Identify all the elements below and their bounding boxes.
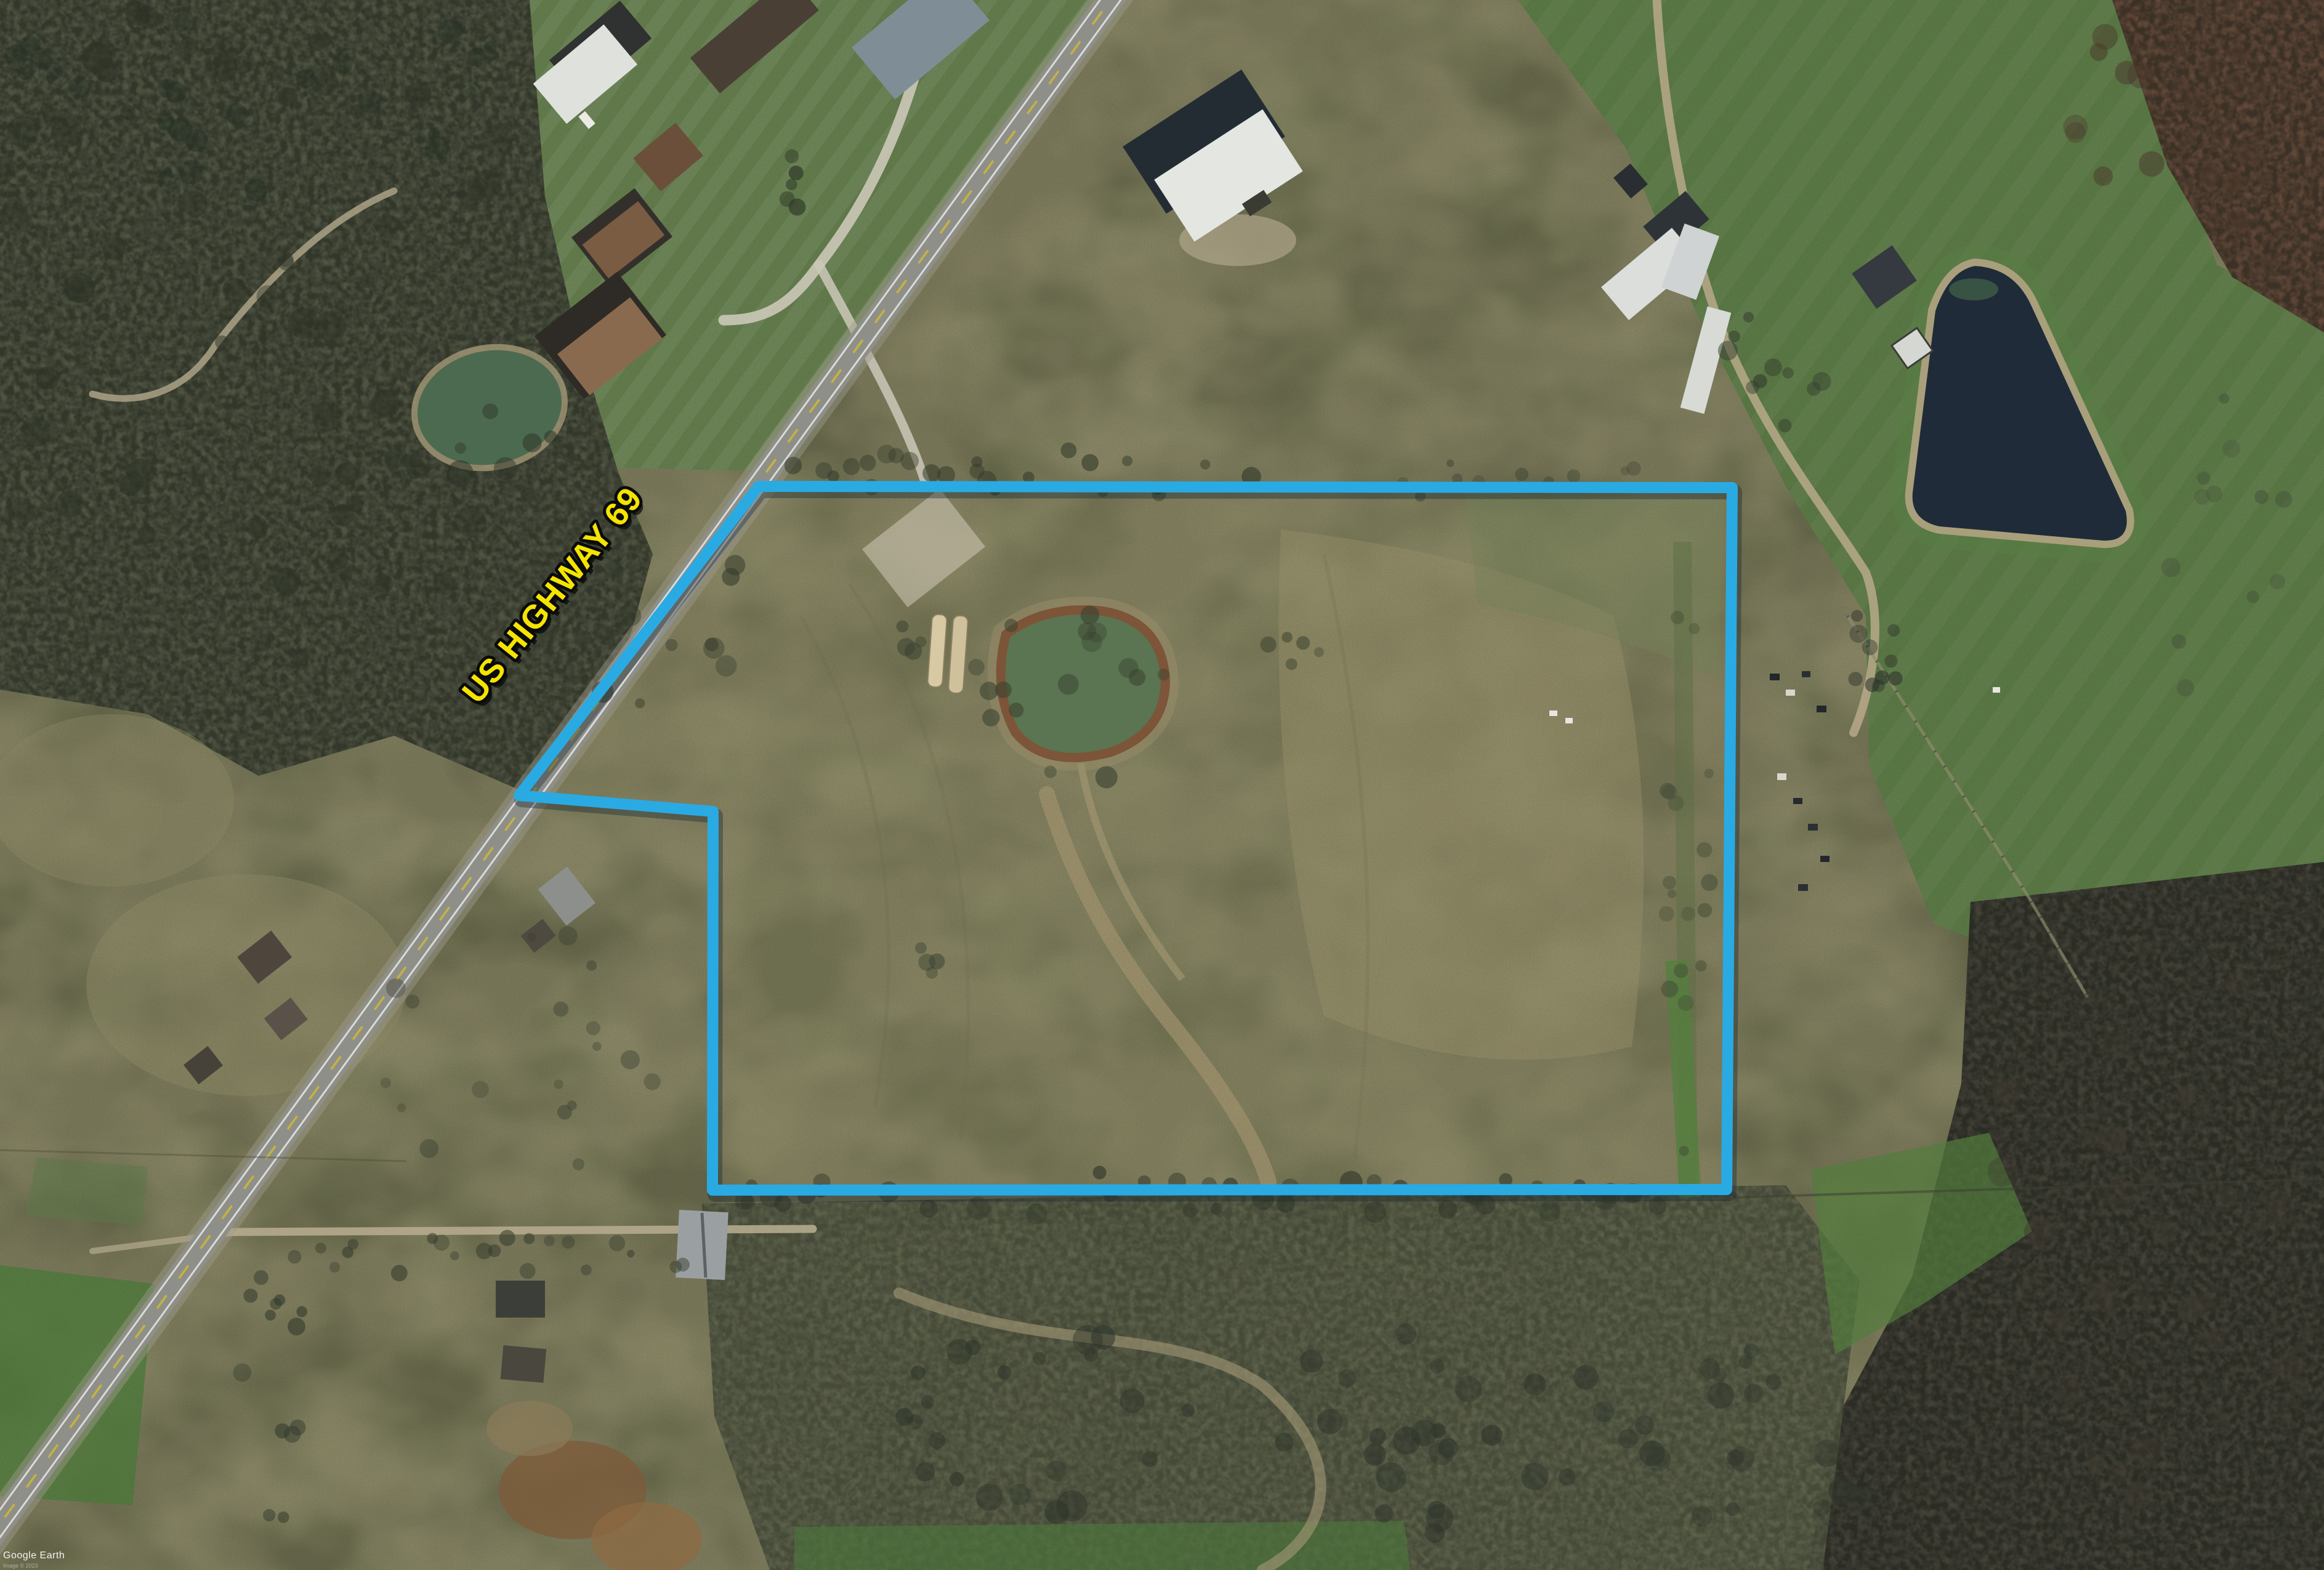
shed-south-dark: [496, 1281, 545, 1318]
tree-blob: [2171, 77, 2189, 95]
tree-blob: [42, 107, 62, 127]
tree-blob: [1158, 669, 1169, 680]
tree-blob: [877, 445, 895, 463]
tree-blob: [1081, 606, 1099, 624]
tree-blob: [358, 90, 382, 113]
tree-blob: [815, 462, 832, 479]
tree-blob: [290, 1420, 306, 1436]
tree-blob: [982, 709, 999, 726]
tree-blob: [1701, 874, 1717, 891]
tree-blob: [1317, 1409, 1342, 1434]
tree-blob: [2265, 1196, 2296, 1226]
tree-blob: [1849, 672, 1863, 686]
tree-blob: [263, 1509, 275, 1521]
tree-blob: [1429, 1439, 1455, 1465]
tree-blob: [1275, 1433, 1294, 1452]
tree-blob: [908, 1414, 922, 1428]
tree-blob: [1764, 358, 1782, 376]
tree-blob: [1705, 768, 1714, 778]
tree-blob: [843, 458, 860, 475]
tree-blob: [703, 637, 725, 659]
tree-blob: [897, 621, 909, 633]
tree-blob: [929, 954, 945, 970]
tree-blob: [458, 179, 485, 207]
tree-blob: [255, 635, 271, 651]
tree-blob: [55, 491, 83, 518]
tree-blob: [94, 58, 118, 83]
tree-blob: [269, 65, 285, 81]
tree-blob: [2088, 1456, 2106, 1475]
tree-blob: [375, 574, 393, 593]
tree-blob: [434, 1234, 450, 1250]
tree-blob: [450, 1251, 459, 1260]
tree-blob: [36, 366, 60, 390]
tree-blob: [523, 433, 542, 453]
tree-blob: [2193, 1294, 2212, 1313]
tree-blob: [2063, 115, 2088, 139]
tree-blob: [1729, 331, 1740, 342]
tree-blob: [1718, 341, 1738, 361]
tree-blob: [1689, 623, 1700, 634]
tree-blob: [1026, 1204, 1047, 1225]
tree-blob: [562, 1236, 575, 1249]
tree-blob: [1122, 456, 1132, 466]
tree-blob: [2222, 440, 2240, 458]
tree-blob: [408, 108, 419, 119]
tree-blob: [212, 39, 236, 63]
tree-blob: [2094, 166, 2113, 186]
tree-blob: [915, 942, 927, 954]
tree-blob: [1430, 1359, 1445, 1374]
tree-blob: [1988, 1157, 2018, 1187]
tree-blob: [2235, 140, 2261, 166]
tree-blob: [581, 1265, 592, 1276]
tree-blob: [20, 416, 51, 447]
tree-blob: [950, 1472, 964, 1487]
tree-blob: [1671, 611, 1684, 624]
tree-blob: [158, 113, 175, 131]
tree-blob: [1200, 459, 1210, 469]
tree-blob: [215, 336, 229, 350]
tree-blob: [1726, 1502, 1740, 1516]
tree-blob: [482, 403, 498, 419]
tree-blob: [911, 1366, 926, 1380]
tree-blob: [1364, 1444, 1386, 1466]
tree-blob: [499, 1230, 515, 1246]
tree-blob: [2198, 162, 2222, 186]
tree-blob: [567, 1100, 577, 1110]
tree-blob: [1393, 1427, 1421, 1454]
tree-blob: [786, 179, 797, 190]
tree-blob: [1679, 1146, 1689, 1156]
tree-blob: [179, 159, 204, 184]
tree-blob: [1559, 1468, 1576, 1486]
tree-blob: [1813, 1499, 1830, 1516]
tree-blob: [329, 1262, 340, 1273]
tree-blob: [2112, 1135, 2126, 1149]
tree-blob: [243, 1289, 257, 1303]
tree-blob: [1753, 374, 1767, 388]
tree-blob: [372, 389, 400, 417]
tree-blob: [1375, 1504, 1394, 1523]
tree-blob: [2277, 1410, 2293, 1425]
tree-blob: [1425, 1523, 1445, 1543]
tree-blob: [288, 308, 319, 339]
tree-blob: [409, 454, 422, 467]
tree-blob: [1744, 1343, 1759, 1359]
tree-blob: [2124, 1481, 2153, 1510]
tree-blob: [2143, 1172, 2157, 1186]
tree-blob: [2139, 151, 2164, 177]
tree-blob: [485, 123, 514, 152]
tree-blob: [1120, 1388, 1145, 1413]
tree-blob: [466, 87, 476, 97]
tree-blob: [2104, 1303, 2118, 1318]
google-earth-watermark: Google Earth: [3, 1550, 65, 1561]
tree-blob: [998, 1366, 1012, 1380]
tree-blob: [1621, 466, 1630, 475]
tree-blob: [1033, 1352, 1046, 1366]
tree-blob: [2211, 1411, 2231, 1430]
tree-blob: [789, 166, 804, 180]
tree-blob: [275, 1423, 290, 1439]
tree-blob: [309, 33, 326, 51]
tree-blob: [12, 502, 35, 525]
tree-blob: [2177, 679, 2194, 696]
tree-blob: [454, 505, 486, 537]
tree-blob: [1523, 1373, 1546, 1395]
tree-blob: [46, 62, 63, 79]
tree-blob: [68, 76, 91, 99]
tree-blob: [438, 20, 462, 44]
tree-blob: [2024, 1217, 2053, 1246]
tree-blob: [1697, 842, 1712, 858]
tree-blob: [64, 273, 94, 303]
tree-blob: [1635, 1415, 1654, 1435]
tree-blob: [1081, 454, 1099, 472]
tree-blob: [2217, 1186, 2237, 1205]
dirt-pile-3: [486, 1401, 573, 1456]
tree-blob: [1659, 906, 1674, 922]
tree-blob: [1395, 1324, 1416, 1345]
tree-blob: [523, 1233, 535, 1244]
tree-blob: [1446, 459, 1454, 467]
tree-blob: [223, 278, 248, 302]
tree-blob: [2226, 44, 2243, 61]
tree-blob: [716, 655, 737, 677]
tree-blob: [1046, 1460, 1067, 1481]
tree-blob: [621, 1050, 640, 1069]
tree-blob: [472, 1081, 489, 1098]
tree-blob: [455, 443, 466, 454]
tree-blob: [348, 1239, 358, 1249]
tree-blob: [1004, 619, 1018, 632]
tree-blob: [2205, 1330, 2225, 1350]
tree-blob: [897, 638, 915, 656]
tree-blob: [2127, 1278, 2143, 1294]
tree-blob: [310, 466, 331, 487]
tree-blob: [2136, 941, 2152, 957]
tree-blob: [2219, 393, 2229, 404]
tree-blob: [1695, 960, 1706, 972]
tree-blob: [860, 455, 876, 471]
tree-blob: [1698, 903, 1713, 918]
tree-blob: [1574, 1365, 1599, 1390]
tree-blob: [406, 995, 420, 1009]
tree-blob: [570, 675, 580, 685]
tree-blob: [2115, 61, 2139, 85]
tree-blob: [1182, 1404, 1195, 1417]
tree-blob: [574, 630, 592, 648]
tree-blob: [2300, 1325, 2315, 1340]
tree-blob: [609, 1235, 625, 1251]
tree-blob: [1482, 1425, 1503, 1446]
tree-blob: [1567, 469, 1581, 483]
tree-blob: [1743, 312, 1754, 323]
tree-blob: [288, 1318, 305, 1335]
tree-blob: [1851, 610, 1863, 622]
tree-blob: [158, 79, 177, 98]
tree-blob: [467, 47, 486, 66]
tree-blob: [103, 237, 126, 260]
tree-blob: [494, 457, 517, 481]
tree-blob: [381, 1077, 391, 1088]
tree-blob: [1663, 876, 1676, 889]
tree-blob: [1778, 419, 1792, 432]
tree-blob: [2257, 171, 2271, 185]
tree-blob: [1044, 1500, 1068, 1524]
tree-blob: [2172, 634, 2187, 649]
tree-blob: [315, 311, 346, 342]
tree-blob: [2226, 211, 2253, 238]
tree-blob: [2054, 1379, 2082, 1407]
tree-blob: [245, 179, 267, 201]
tree-blob: [1849, 1486, 1873, 1510]
tree-blob: [2108, 1460, 2134, 1486]
tree-blob: [1594, 1401, 1615, 1422]
tree-blob: [559, 927, 578, 946]
tree-blob: [173, 13, 191, 31]
tree-blob: [315, 1242, 326, 1254]
tree-blob: [1282, 632, 1293, 642]
tree-blob: [563, 451, 576, 464]
tree-blob: [335, 462, 358, 486]
tree-blob: [1044, 766, 1057, 778]
tree-blob: [554, 1080, 563, 1089]
tree-blob: [233, 1364, 251, 1382]
tree-blob: [2225, 970, 2252, 997]
tree-blob: [1300, 1350, 1323, 1372]
tree-blob: [265, 1310, 276, 1321]
tree-blob: [447, 461, 474, 487]
tree-blob: [296, 69, 315, 88]
imagery-attribution: Image © 2023: [3, 1563, 38, 1569]
tree-blob: [976, 1484, 1003, 1511]
tree-blob: [476, 1243, 493, 1260]
tree-blob: [520, 1263, 536, 1279]
tree-blob: [2222, 172, 2244, 193]
tree-blob: [1661, 981, 1679, 998]
tree-blob: [278, 1512, 289, 1523]
tree-blob: [185, 129, 208, 152]
tree-blob: [406, 81, 432, 107]
tree-blob: [669, 1261, 682, 1273]
tree-blob: [2202, 58, 2220, 76]
tree-blob: [785, 457, 802, 474]
tree-blob: [1087, 622, 1107, 642]
tree-blob: [1700, 1358, 1721, 1379]
tree-blob: [1708, 1382, 1734, 1409]
tree-blob: [722, 568, 740, 586]
tree-blob: [1118, 658, 1138, 678]
tree-blob: [278, 255, 294, 271]
tree-blob: [1261, 637, 1277, 653]
tree-blob: [1889, 671, 1903, 685]
tree-blob: [226, 103, 248, 125]
tree-blob: [613, 568, 624, 579]
tree-blob: [785, 149, 799, 163]
tree-blob: [368, 161, 377, 171]
tree-blob: [1314, 647, 1324, 657]
tree-blob: [1814, 1439, 1841, 1467]
tree-blob: [1058, 674, 1079, 695]
tree-blob: [375, 214, 399, 238]
tree-blob: [1681, 907, 1695, 921]
tree-blob: [1009, 702, 1023, 717]
tree-blob: [312, 401, 342, 432]
pond-east-algae: [1949, 278, 1998, 300]
tree-blob: [586, 1021, 600, 1036]
tree-blob: [192, 473, 205, 487]
tree-blob: [592, 1042, 602, 1051]
tree-blob: [1744, 1384, 1763, 1403]
tree-blob: [1095, 766, 1118, 788]
satellite-map-canvas: US HIGHWAY 69 US HIGHWAY 69 Google Earth…: [0, 0, 2324, 1570]
tree-blob: [789, 198, 806, 215]
tree-blob: [1338, 1369, 1356, 1387]
tree-blob: [919, 1200, 937, 1218]
tree-blob: [2105, 1178, 2136, 1209]
tree-blob: [2164, 35, 2183, 54]
tree-blob: [180, 37, 199, 56]
tree-blob: [1427, 1501, 1445, 1519]
tree-blob: [2176, 1085, 2197, 1107]
tree-blob: [127, 459, 155, 486]
tree-blob: [1875, 670, 1889, 685]
tree-blob: [278, 87, 297, 107]
tree-blob: [334, 300, 348, 315]
tree-blob: [428, 129, 440, 141]
tree-blob: [2195, 489, 2211, 505]
tree-blob: [4, 44, 28, 68]
tree-blob: [1678, 995, 1694, 1011]
tree-blob: [288, 1250, 301, 1263]
tree-blob: [2085, 991, 2100, 1006]
tree-blob: [2247, 590, 2259, 603]
tree-blob: [386, 978, 406, 998]
tree-blob: [1646, 1446, 1671, 1471]
tree-blob: [594, 624, 616, 646]
tree-blob: [1783, 368, 1794, 379]
tree-blob: [1093, 1165, 1107, 1179]
tree-blob: [1183, 1202, 1198, 1217]
tree-blob: [1674, 964, 1689, 978]
tree-blob: [627, 1250, 634, 1257]
tree-blob: [916, 1462, 935, 1481]
tree-blob: [2195, 1098, 2213, 1117]
tree-blob: [327, 548, 349, 570]
tree-blob: [1455, 1376, 1482, 1403]
tree-blob: [254, 1270, 268, 1285]
tree-blob: [1073, 1325, 1103, 1355]
tree-blob: [391, 1265, 408, 1281]
tree-blob: [193, 554, 211, 572]
tree-blob: [544, 1235, 555, 1246]
tree-blob: [1430, 1423, 1446, 1438]
tree-blob: [554, 1002, 569, 1017]
tree-blob: [2225, 71, 2248, 94]
tree-blob: [433, 573, 455, 595]
tree-blob: [7, 116, 39, 147]
tree-blob: [573, 1158, 585, 1170]
tree-blob: [1009, 1484, 1030, 1505]
tree-blob: [1862, 639, 1878, 655]
tree-blob: [2270, 574, 2285, 589]
tree-blob: [544, 430, 557, 443]
tree-blob: [234, 55, 252, 74]
tree-blob: [1807, 382, 1821, 396]
tree-blob: [2031, 1369, 2045, 1383]
tree-blob: [2130, 1436, 2161, 1467]
tree-blob: [528, 933, 537, 942]
tree-blob: [1765, 1374, 1781, 1390]
tree-blob: [644, 1073, 661, 1090]
tree-blob: [2275, 491, 2292, 507]
tree-blob: [621, 605, 642, 626]
tree-blob: [2102, 1030, 2131, 1059]
terrain-grain: [0, 0, 2324, 1570]
tree-blob: [137, 526, 155, 544]
tree-blob: [1370, 1428, 1386, 1445]
tree-blob: [259, 329, 275, 345]
tree-blob: [1993, 1079, 2021, 1107]
tree-blob: [2092, 24, 2118, 50]
tree-blob: [2, 199, 23, 220]
tree-blob: [1539, 1201, 1560, 1222]
tree-blob: [921, 1395, 934, 1408]
tree-blob: [2184, 90, 2206, 112]
tree-blob: [483, 41, 496, 54]
tree-blob: [2016, 1272, 2042, 1298]
satellite-map-view: US HIGHWAY 69 US HIGHWAY 69 Google Earth…: [0, 0, 2324, 1570]
tree-blob: [1286, 658, 1297, 670]
tree-blob: [1376, 1462, 1406, 1492]
tree-blob: [384, 451, 399, 465]
tree-blob: [360, 274, 374, 288]
tree-blob: [1727, 1449, 1744, 1467]
tree-blob: [968, 659, 985, 675]
tree-blob: [397, 1103, 406, 1112]
tree-blob: [1296, 636, 1310, 650]
tree-blob: [1849, 625, 1867, 643]
tree-blob: [980, 682, 998, 700]
tree-blob: [273, 568, 301, 595]
tree-blob: [2133, 1292, 2152, 1311]
tree-blob: [2197, 472, 2210, 485]
tree-blob: [1521, 1463, 1548, 1490]
tree-blob: [292, 649, 310, 667]
tree-blob: [135, 6, 159, 29]
